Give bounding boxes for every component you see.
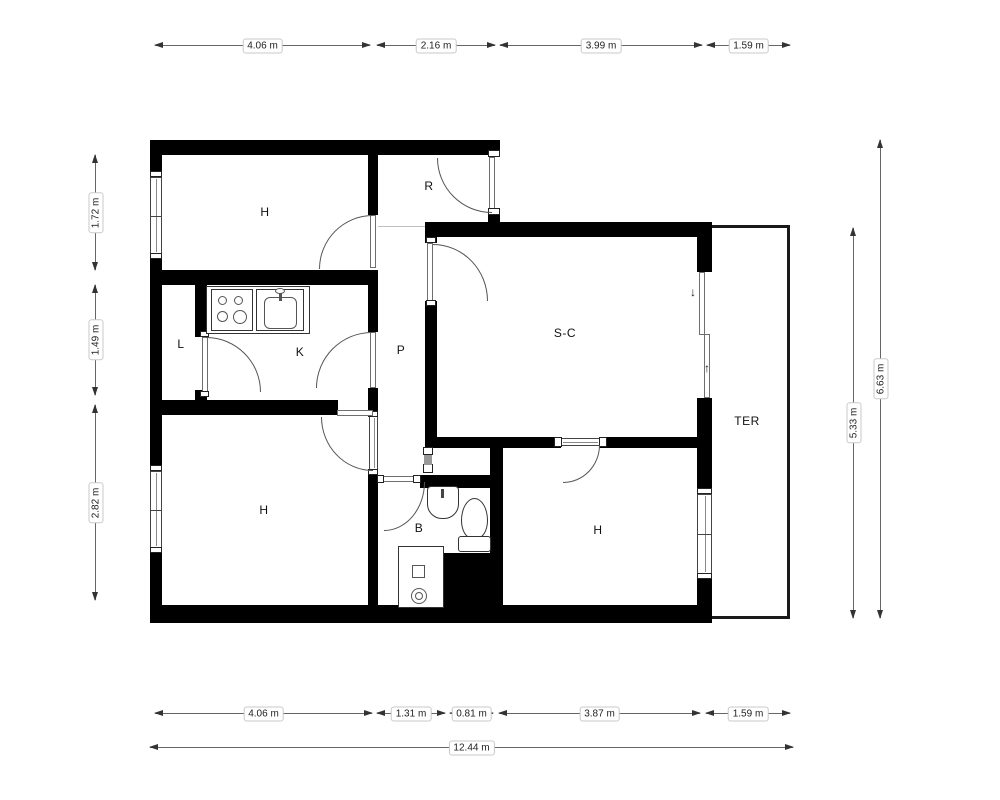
stove-icon: [211, 289, 253, 331]
window-jamb: [150, 547, 162, 553]
wall-livingroom-top: [425, 222, 712, 237]
door-arc-pantry: [206, 337, 261, 392]
dimension-label: 4.06 m: [242, 39, 283, 54]
room-label-sc: S-C: [554, 326, 576, 340]
dimension-label: 5.33 m: [847, 403, 862, 444]
door-jamb: [488, 150, 500, 157]
window-jamb: [150, 253, 162, 259]
dimension-horizontal: 1.59 m: [706, 713, 790, 714]
door-arc-kitchen: [316, 332, 372, 388]
room-label-h-bottom-right: H: [593, 523, 602, 537]
stove-burner-icon: [218, 296, 227, 305]
terrace-outline-top: [712, 225, 790, 228]
door-arc-bedroom-top: [319, 215, 373, 269]
window-jamb: [150, 171, 162, 177]
arrowhead-left-icon: [154, 42, 163, 48]
dimension-label: 1.59 m: [728, 707, 769, 722]
dimension-label: 4.06 m: [243, 707, 284, 722]
dimension-horizontal: 1.59 m: [707, 45, 790, 46]
dimension-vertical: 1.72 m: [95, 155, 96, 270]
arrowhead-down-icon: [92, 262, 98, 271]
arrowhead-right-icon: [782, 42, 791, 48]
arrowhead-right-icon: [364, 710, 373, 716]
arrowhead-up-icon: [877, 139, 883, 148]
dimension-vertical: 2.82 m: [95, 405, 96, 600]
dimension-horizontal: 2.16 m: [377, 45, 495, 46]
room-boundary-line: [378, 226, 425, 227]
dimension-vertical: 5.33 m: [853, 228, 854, 618]
door-jamb: [426, 237, 436, 243]
arrowhead-up-icon: [92, 154, 98, 163]
arrowhead-up-icon: [92, 284, 98, 293]
dimension-label: 2.82 m: [89, 482, 104, 523]
dimension-label: 1.49 m: [89, 320, 104, 361]
dimension-label: 2.16 m: [416, 39, 457, 54]
arrowhead-left-icon: [498, 710, 507, 716]
arrowhead-left-icon: [149, 744, 158, 750]
arrowhead-right-icon: [362, 42, 371, 48]
dimension-vertical: 1.49 m: [95, 285, 96, 395]
closet-door-jamb: [423, 464, 433, 473]
wall-kitchen-bottom: [150, 400, 338, 415]
arrowhead-down-icon: [850, 610, 856, 619]
kitchen-sink-basin: [264, 297, 297, 329]
room-label-l: L: [177, 337, 184, 351]
dimension-horizontal: 12.44 m: [150, 747, 793, 748]
dimension-label: 0.81 m: [451, 707, 492, 722]
kitchen-tap-head: [275, 288, 285, 294]
window-bedroom-bottom-left: [150, 471, 162, 548]
arrowhead-up-icon: [92, 404, 98, 413]
closet-door-jamb: [423, 447, 433, 455]
arrowhead-right-icon: [785, 744, 794, 750]
arrowhead-left-icon: [154, 710, 163, 716]
wall-spine-b: [368, 285, 378, 332]
window-jamb: [697, 573, 712, 579]
arrowhead-left-icon: [705, 710, 714, 716]
closet-door-leaf: [424, 455, 432, 465]
door-arc-bedroom-bottom-left: [321, 417, 373, 471]
arrowhead-down-icon: [92, 387, 98, 396]
dimension-label: 1.59 m: [728, 39, 769, 54]
shaft-block: [444, 553, 502, 606]
room-label-ter: TER: [734, 414, 760, 428]
dimension-horizontal: 3.99 m: [500, 45, 702, 46]
door-arc-entrance: [437, 158, 492, 213]
wall-right-c: [697, 573, 712, 623]
window-jamb: [150, 465, 162, 471]
wall-top: [150, 140, 500, 155]
room-label-p: P: [397, 343, 406, 357]
room-label-k: K: [296, 345, 305, 359]
shower-drain-square: [412, 565, 425, 578]
slide-direction-down-icon: ↓: [690, 286, 696, 298]
dimension-horizontal: 3.87 m: [499, 713, 700, 714]
room-label-b: B: [415, 521, 424, 535]
door-jamb: [599, 437, 607, 447]
stove-burner-icon: [234, 296, 243, 305]
dimension-label: 6.63 m: [874, 359, 889, 400]
window-bedroom-top-left: [150, 177, 162, 254]
window-jamb: [697, 488, 712, 494]
sliding-door-leaf-upper: [699, 272, 705, 335]
arrowhead-right-icon: [692, 710, 701, 716]
dimension-label: 1.72 m: [89, 192, 104, 233]
shower-head-icon-inner: [415, 592, 423, 600]
arrowhead-right-icon: [694, 42, 703, 48]
terrace-outline-right: [787, 225, 790, 619]
dimension-horizontal: 1.31 m: [377, 713, 445, 714]
terrace-outline-bottom: [712, 616, 790, 619]
arrowhead-left-icon: [706, 42, 715, 48]
dimension-label: 12.44 m: [448, 741, 494, 756]
arrowhead-down-icon: [877, 610, 883, 619]
dimension-label: 3.99 m: [581, 39, 622, 54]
door-jamb: [377, 475, 384, 483]
door-arc-livingroom: [433, 244, 488, 301]
room-label-r: R: [424, 179, 433, 193]
dimension-label: 1.31 m: [391, 707, 432, 722]
stove-burner-icon: [217, 311, 228, 322]
door-arc-bedroom-bottom-right: [563, 445, 600, 483]
arrowhead-left-icon: [376, 42, 385, 48]
arrowhead-right-icon: [487, 42, 496, 48]
arrowhead-right-icon: [437, 710, 446, 716]
bathroom-tap-icon: [441, 489, 444, 498]
arrowhead-right-icon: [782, 710, 791, 716]
arrowhead-up-icon: [850, 227, 856, 236]
window-bedroom-right: [697, 494, 712, 574]
wall-spine-d: [368, 469, 378, 623]
room-label-h-top: H: [260, 205, 269, 219]
wall-hall-livingroom-b: [425, 301, 437, 447]
dimension-horizontal: 0.81 m: [450, 713, 493, 714]
floor-plan: ↓ ↑ HRLKPS-CBHHTE: [0, 0, 1000, 800]
dimension-vertical: 6.63 m: [880, 140, 881, 618]
wall-bedroom-kitchen: [150, 270, 378, 285]
door-jamb: [554, 437, 562, 447]
dimension-horizontal: 4.06 m: [155, 713, 372, 714]
arrowhead-left-icon: [499, 42, 508, 48]
dimension-label: 3.87 m: [579, 707, 620, 722]
slide-direction-up-icon: ↑: [704, 362, 710, 374]
wall-spine-a: [368, 155, 378, 215]
dimension-horizontal: 4.06 m: [155, 45, 370, 46]
door-leaf-bedroom-bottom-left: [337, 410, 373, 416]
toilet-tank-icon: [458, 536, 491, 552]
wall-livingroom-bottom-b: [599, 437, 712, 448]
toilet-bowl-icon: [461, 498, 488, 539]
arrowhead-left-icon: [376, 710, 385, 716]
arrowhead-down-icon: [92, 592, 98, 601]
stove-burner-icon: [233, 310, 247, 324]
room-label-h-bottom-left: H: [259, 503, 268, 517]
wall-right-a: [697, 237, 712, 272]
